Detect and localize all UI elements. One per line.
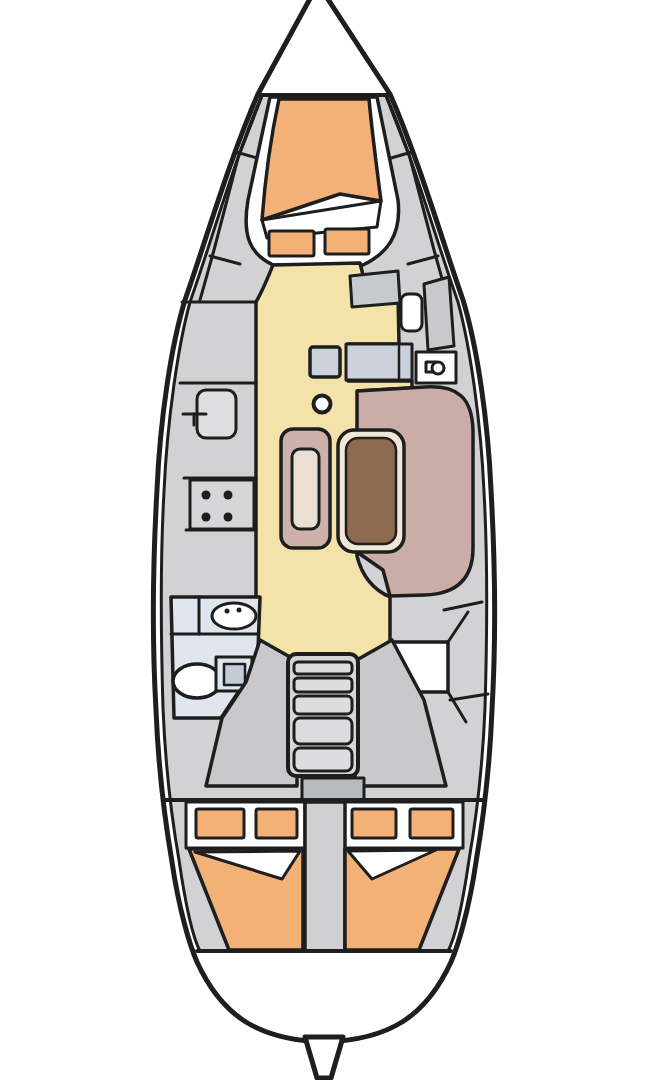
aft-pillow (410, 809, 453, 838)
head-faucet-dot (225, 609, 230, 614)
aft-pillow (256, 809, 297, 838)
shower-drain (224, 664, 245, 685)
rudder-post (305, 1037, 343, 1078)
stove-burner (202, 513, 211, 522)
v-berth-pillow-port (269, 231, 314, 256)
ladder-step (294, 718, 352, 744)
dinette-table-top (346, 438, 396, 544)
aft-pillow (352, 809, 396, 838)
v-berth-pillow-starboard (325, 229, 369, 254)
head-sink (212, 603, 256, 629)
instrument-dial (432, 362, 444, 374)
boat-floor-plan (0, 0, 648, 1080)
salon-sideboard (346, 344, 412, 380)
nav-seat (401, 294, 422, 331)
compression-post (314, 396, 331, 413)
ladder-step (294, 748, 352, 771)
aft-cabin-divider (305, 802, 345, 951)
mast-step (310, 347, 340, 377)
forward-cabin (246, 97, 399, 265)
floor-plan-canvas (0, 0, 648, 1080)
ladder-step (294, 678, 352, 692)
stove-burner (224, 491, 233, 500)
ladder-step (294, 696, 352, 714)
stove-burner (224, 513, 233, 522)
aft-pillow (196, 809, 244, 838)
galley-stove (190, 480, 254, 529)
nav-desk (350, 271, 400, 307)
nav-locker (424, 277, 454, 350)
engine-hatch (302, 778, 364, 800)
ladder-step (294, 662, 352, 674)
stove-burner (202, 491, 211, 500)
toilet (173, 664, 221, 698)
head-faucet-dot (237, 608, 242, 613)
salon-bench-pad (292, 449, 319, 529)
